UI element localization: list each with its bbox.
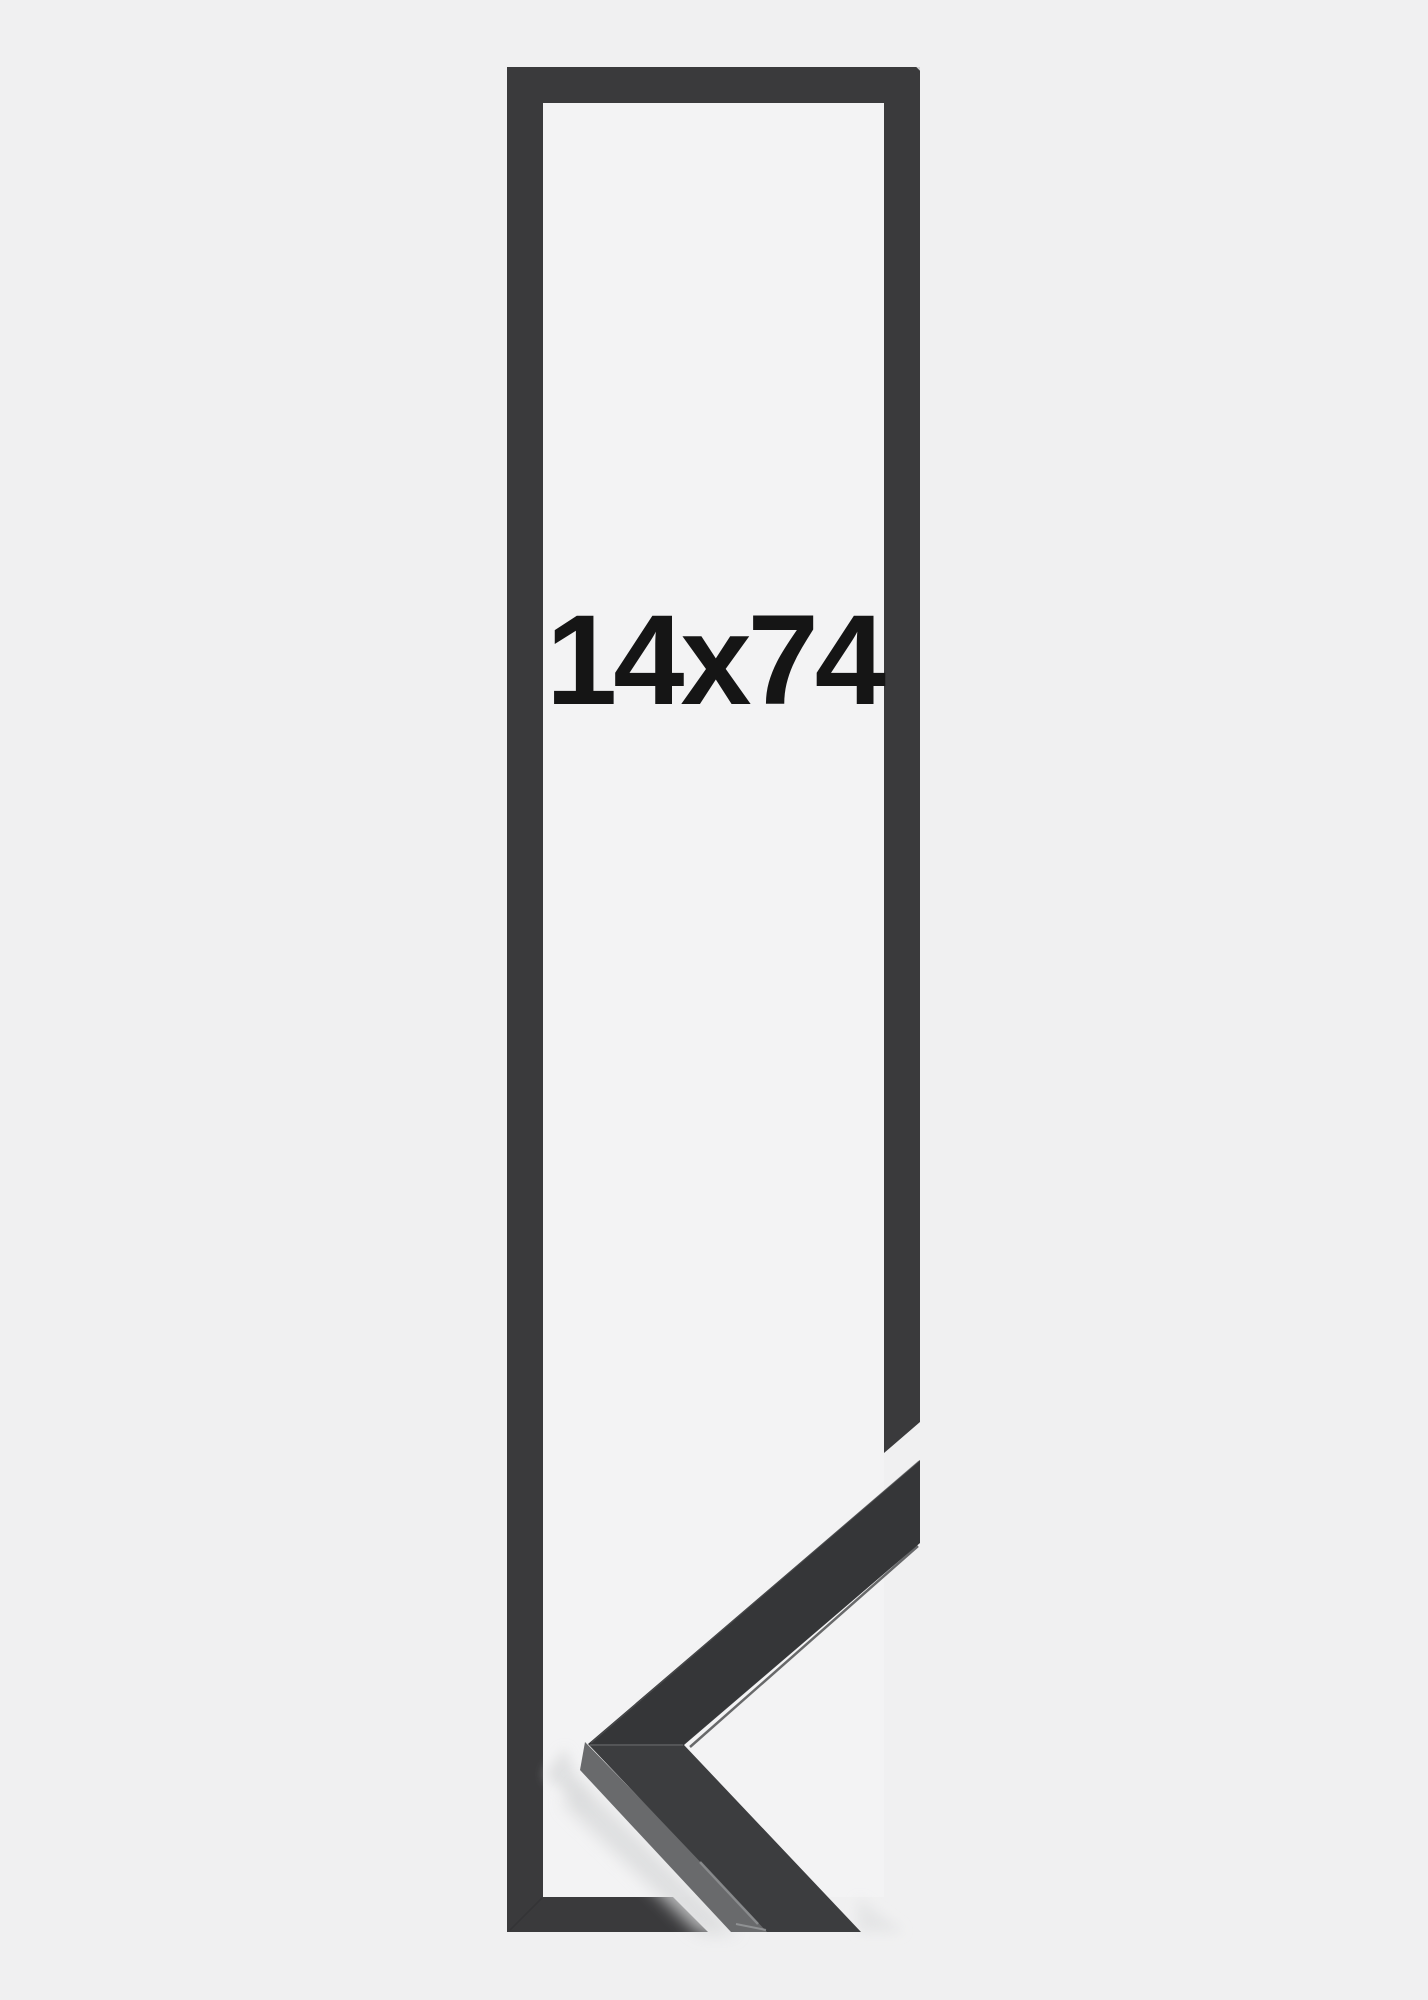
frame-illustration	[0, 0, 1428, 2000]
frame-opening	[543, 103, 884, 1897]
frame-outline-top-bar	[507, 67, 920, 103]
product-image: 14x74	[0, 0, 1428, 2000]
size-label: 14x74	[0, 597, 1428, 725]
frame-outline-left-bar	[507, 67, 543, 1932]
frame-outline-right-bar	[884, 103, 920, 1453]
